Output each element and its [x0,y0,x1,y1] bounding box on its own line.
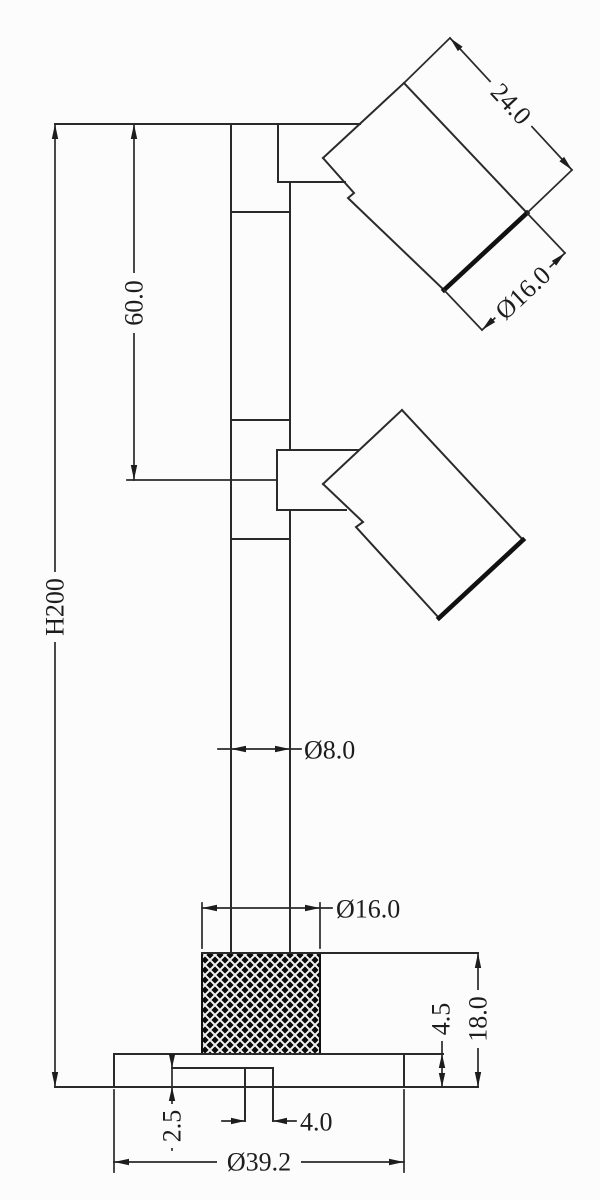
dim-label-base-diameter: Ø39.2 [227,1148,291,1177]
dim-label-stem-width: 4.0 [300,1108,333,1137]
lens-face-middle [439,540,523,618]
center-stem [245,1068,273,1121]
mounting-pole [55,124,360,953]
spotlight-head-middle [323,410,523,618]
technical-drawing: 24.0 Ø16.0 60.0 [0,0,600,1200]
dim-head-spacing: 60.0 [120,124,278,480]
dim-stem-width: 4.0 [222,1108,333,1137]
dim-pole-diameter: Ø8.0 [218,736,355,765]
dim-head-length: 24.0 [404,36,574,213]
dim-label-head-spacing: 60.0 [120,280,149,326]
dim-label-knob-diameter: Ø16.0 [336,895,400,924]
dim-base-plate-thickness: 4.5 [427,997,456,1087]
dim-label-base-assembly-height: 18.0 [464,996,493,1042]
spotlight-head-top [323,83,527,290]
technical-drawing-page: 24.0 Ø16.0 60.0 [0,0,600,1200]
dim-label-base-plate-thickness: 4.5 [427,1003,456,1036]
base-plate [55,1054,478,1121]
dim-label-pole-diameter: Ø8.0 [304,736,355,765]
dim-label-recess-depth: 2.5 [158,1110,187,1143]
dim-label-total-height: H200 [41,578,70,636]
lens-face-top [444,213,527,290]
dim-base-assembly-height: 18.0 [464,953,493,1087]
head-bracket-middle [277,450,358,510]
head-bracket-top [278,124,345,182]
dim-total-height: H200 [41,124,70,1087]
